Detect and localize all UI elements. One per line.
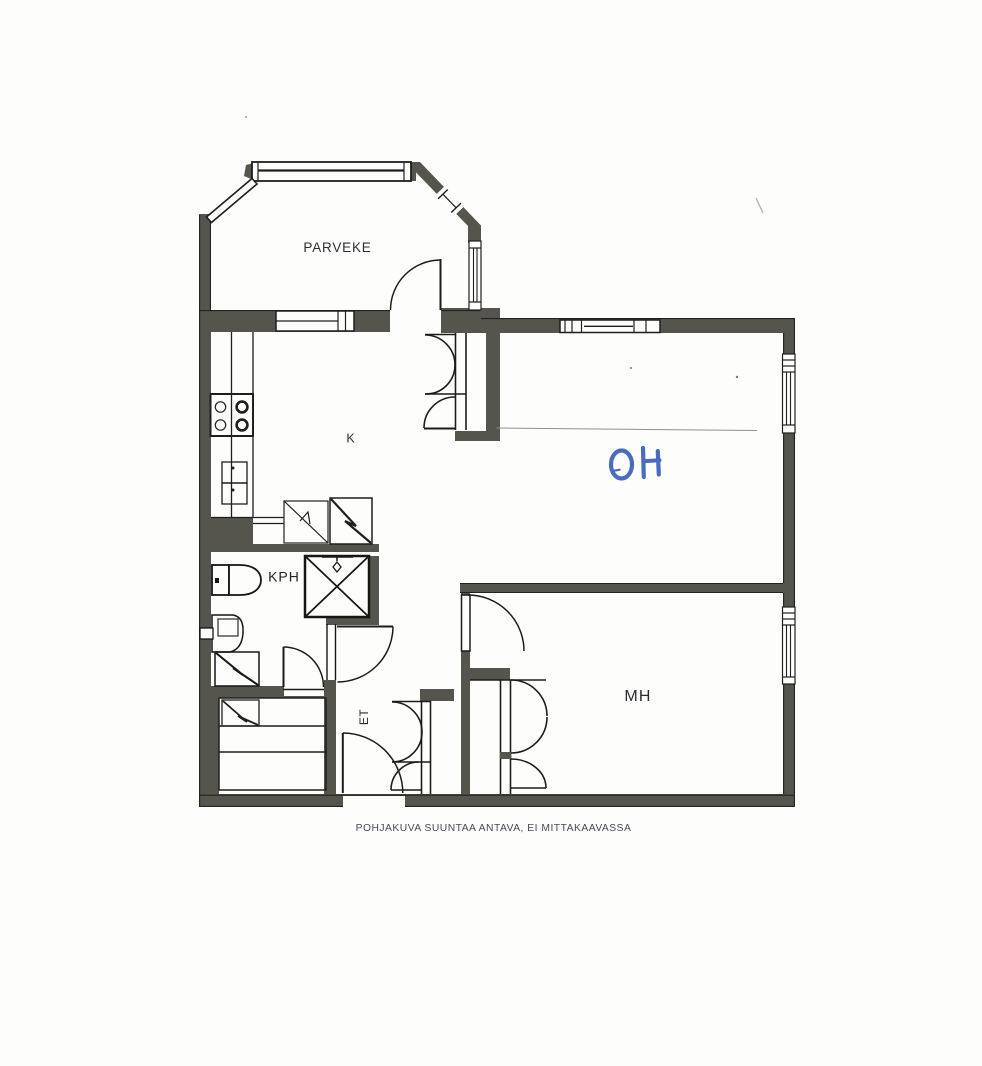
- svg-text:KPH: KPH: [268, 569, 300, 585]
- svg-text:ET: ET: [357, 709, 371, 726]
- svg-text:K: K: [346, 432, 355, 446]
- svg-text:MH: MH: [624, 688, 651, 705]
- svg-text:POHJAKUVA SUUNTAA ANTAVA, EI M: POHJAKUVA SUUNTAA ANTAVA, EI MITTAKAAVAS…: [356, 823, 632, 834]
- svg-text:PARVEKE: PARVEKE: [303, 240, 371, 255]
